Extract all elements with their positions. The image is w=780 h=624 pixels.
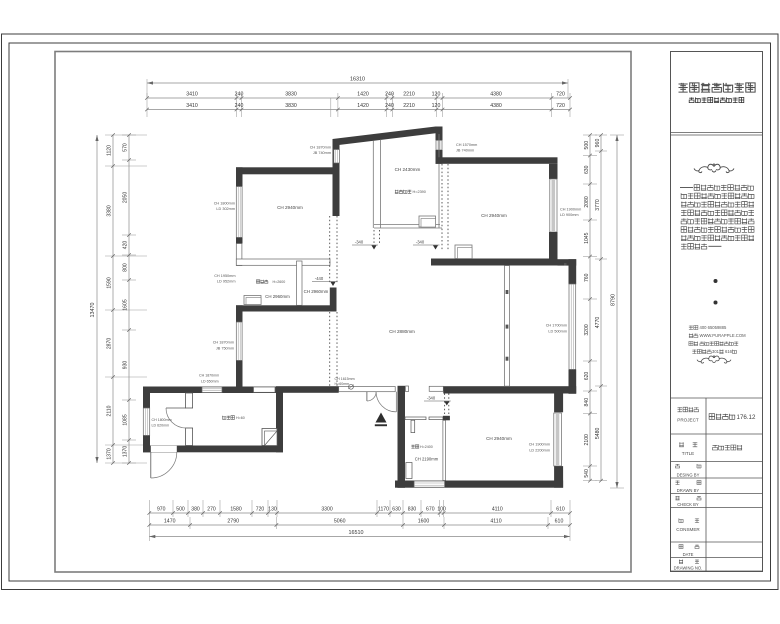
- svg-text:1605: 1605: [123, 299, 129, 310]
- svg-text:400 65059885: 400 65059885: [700, 325, 727, 330]
- svg-text:2050: 2050: [123, 192, 129, 203]
- svg-text:WWW.PURAPPLE.COM: WWW.PURAPPLE.COM: [700, 333, 747, 338]
- svg-text:H=2600: H=2600: [273, 280, 286, 284]
- svg-text:3380: 3380: [107, 205, 113, 216]
- svg-text:CH 1800mm: CH 1800mm: [214, 202, 235, 206]
- svg-text:CH 2430mm: CH 2430mm: [395, 167, 421, 172]
- svg-text:4110: 4110: [490, 519, 501, 525]
- svg-text:4380: 4380: [490, 103, 502, 109]
- svg-text:CHECK BY: CHECK BY: [677, 502, 699, 507]
- svg-text:4110: 4110: [492, 507, 503, 513]
- svg-text:380: 380: [191, 507, 200, 513]
- svg-text:CH 1870mm: CH 1870mm: [213, 341, 234, 345]
- svg-text:CH 2190mm: CH 2190mm: [415, 457, 439, 462]
- svg-text:3830: 3830: [285, 92, 297, 98]
- svg-text:TITLE: TITLE: [682, 451, 695, 456]
- svg-text:CH 1870mm: CH 1870mm: [199, 374, 219, 378]
- svg-text:301: 301: [712, 349, 720, 354]
- svg-text:2870: 2870: [107, 338, 113, 349]
- svg-text:630: 630: [584, 165, 590, 174]
- svg-text:CH 1900mm: CH 1900mm: [529, 443, 550, 447]
- svg-text:2790: 2790: [227, 519, 239, 525]
- svg-text:CH 2960mm: CH 2960mm: [304, 289, 329, 294]
- svg-text:1580: 1580: [230, 507, 241, 513]
- svg-text:3200: 3200: [584, 324, 590, 335]
- svg-text:CH 1700mm: CH 1700mm: [546, 324, 567, 328]
- svg-text:3410: 3410: [186, 103, 198, 109]
- svg-text:LD 900mm: LD 900mm: [560, 213, 579, 217]
- svg-text:16310: 16310: [350, 77, 365, 83]
- svg-text:1470: 1470: [164, 519, 176, 525]
- svg-text:930: 930: [123, 361, 129, 370]
- svg-text:620: 620: [584, 372, 590, 381]
- svg-text:16510: 16510: [349, 530, 364, 536]
- svg-text:LD 2200mm: LD 2200mm: [529, 449, 550, 453]
- svg-text:-440: -440: [315, 276, 324, 281]
- svg-text:630: 630: [392, 507, 401, 513]
- svg-text:H=2400: H=2400: [420, 445, 433, 449]
- svg-text:1420: 1420: [357, 92, 369, 98]
- svg-text:CONSMER: CONSMER: [676, 527, 700, 532]
- svg-text:240: 240: [385, 103, 394, 109]
- svg-text:570: 570: [123, 143, 129, 152]
- svg-text:1370: 1370: [107, 448, 113, 459]
- svg-text:LD 500mm: LD 500mm: [548, 330, 567, 334]
- svg-text:LD 952mm: LD 952mm: [217, 280, 236, 284]
- svg-text:720: 720: [256, 507, 265, 513]
- svg-text:JB 740mm: JB 740mm: [313, 151, 331, 155]
- svg-text:240: 240: [235, 103, 244, 109]
- svg-text:CH 1570mm: CH 1570mm: [456, 143, 477, 147]
- svg-text:DESING BY: DESING BY: [677, 473, 700, 478]
- svg-text:270: 270: [207, 507, 216, 513]
- svg-text:1085: 1085: [123, 414, 129, 425]
- svg-text:120: 120: [432, 92, 441, 98]
- svg-text:2210: 2210: [403, 103, 415, 109]
- svg-text:5060: 5060: [334, 519, 346, 525]
- svg-text:JB 750mm: JB 750mm: [216, 347, 234, 351]
- svg-text:2100: 2100: [584, 434, 590, 445]
- svg-text:4770: 4770: [595, 317, 601, 329]
- svg-text:3770: 3770: [595, 199, 601, 211]
- svg-text:H=2390: H=2390: [413, 190, 426, 194]
- svg-text:CH 1870mm: CH 1870mm: [310, 146, 331, 150]
- svg-text:CH 1900mm: CH 1900mm: [560, 208, 581, 212]
- svg-text:CH 1800mm: CH 1800mm: [152, 418, 172, 422]
- svg-text:CH 2940mm: CH 2940mm: [277, 205, 303, 210]
- svg-text:1600: 1600: [418, 519, 430, 525]
- svg-text:13470: 13470: [90, 303, 96, 318]
- svg-text:DRAWN BY: DRAWN BY: [677, 488, 700, 493]
- svg-text:CH 2940mm: CH 2940mm: [481, 213, 507, 218]
- svg-text:616: 616: [725, 349, 733, 354]
- svg-text:120: 120: [432, 103, 441, 109]
- svg-text:1120: 1120: [107, 145, 113, 156]
- svg-text:540: 540: [584, 469, 590, 478]
- svg-text:240: 240: [235, 92, 244, 98]
- svg-text:720: 720: [556, 92, 565, 98]
- svg-text:DRAWING NO.: DRAWING NO.: [674, 566, 703, 571]
- svg-text:960: 960: [595, 139, 601, 148]
- svg-text:500: 500: [584, 141, 590, 150]
- svg-text:4380: 4380: [490, 92, 502, 98]
- svg-text:-340: -340: [355, 240, 364, 245]
- svg-text:1170: 1170: [378, 507, 389, 513]
- svg-text:130: 130: [268, 507, 277, 513]
- svg-text:3300: 3300: [321, 507, 332, 513]
- svg-text:5480: 5480: [595, 428, 601, 440]
- svg-text:2110: 2110: [107, 405, 113, 416]
- svg-text:LD 620mm: LD 620mm: [152, 424, 170, 428]
- svg-text:1370: 1370: [123, 446, 129, 457]
- svg-text:CH 1950mm: CH 1950mm: [214, 274, 235, 278]
- svg-text:500: 500: [176, 507, 185, 513]
- svg-text:840: 840: [584, 398, 590, 407]
- svg-text:-340: -340: [427, 396, 436, 401]
- svg-text:JB 740mm: JB 740mm: [456, 149, 474, 153]
- svg-text:176.12: 176.12: [737, 414, 756, 421]
- svg-text:H=60: H=60: [236, 416, 245, 420]
- svg-text:2080: 2080: [584, 196, 590, 207]
- svg-text:2210: 2210: [403, 92, 415, 98]
- svg-text:DATE: DATE: [683, 552, 694, 557]
- svg-text:720: 720: [556, 103, 565, 109]
- svg-text:CH 1615mm: CH 1615mm: [335, 377, 355, 381]
- svg-text:-340: -340: [416, 240, 425, 245]
- svg-text:CH 2960mm: CH 2960mm: [265, 294, 290, 299]
- svg-text:LD 650mm: LD 650mm: [201, 380, 219, 384]
- svg-text:420: 420: [123, 241, 129, 250]
- svg-text:1420: 1420: [357, 103, 369, 109]
- svg-text:3410: 3410: [186, 92, 198, 98]
- svg-text:800: 800: [123, 263, 129, 272]
- svg-text:CH 2940mm: CH 2940mm: [486, 436, 512, 441]
- svg-text:1045: 1045: [584, 232, 590, 243]
- svg-text:670: 670: [426, 507, 435, 513]
- svg-text:610: 610: [555, 519, 564, 525]
- svg-text:LD 302mm: LD 302mm: [216, 207, 235, 211]
- svg-text:8790: 8790: [611, 294, 617, 306]
- svg-text:970: 970: [157, 507, 166, 513]
- svg-text:100: 100: [437, 507, 446, 513]
- svg-text:610: 610: [556, 507, 565, 513]
- svg-text:1590: 1590: [107, 277, 113, 288]
- svg-text:760: 760: [584, 273, 590, 282]
- svg-text:830: 830: [408, 507, 417, 513]
- svg-text:3830: 3830: [285, 103, 297, 109]
- svg-text:PROJECT: PROJECT: [677, 418, 699, 423]
- svg-text:240: 240: [385, 92, 394, 98]
- svg-text:CH 2880mm: CH 2880mm: [389, 329, 415, 334]
